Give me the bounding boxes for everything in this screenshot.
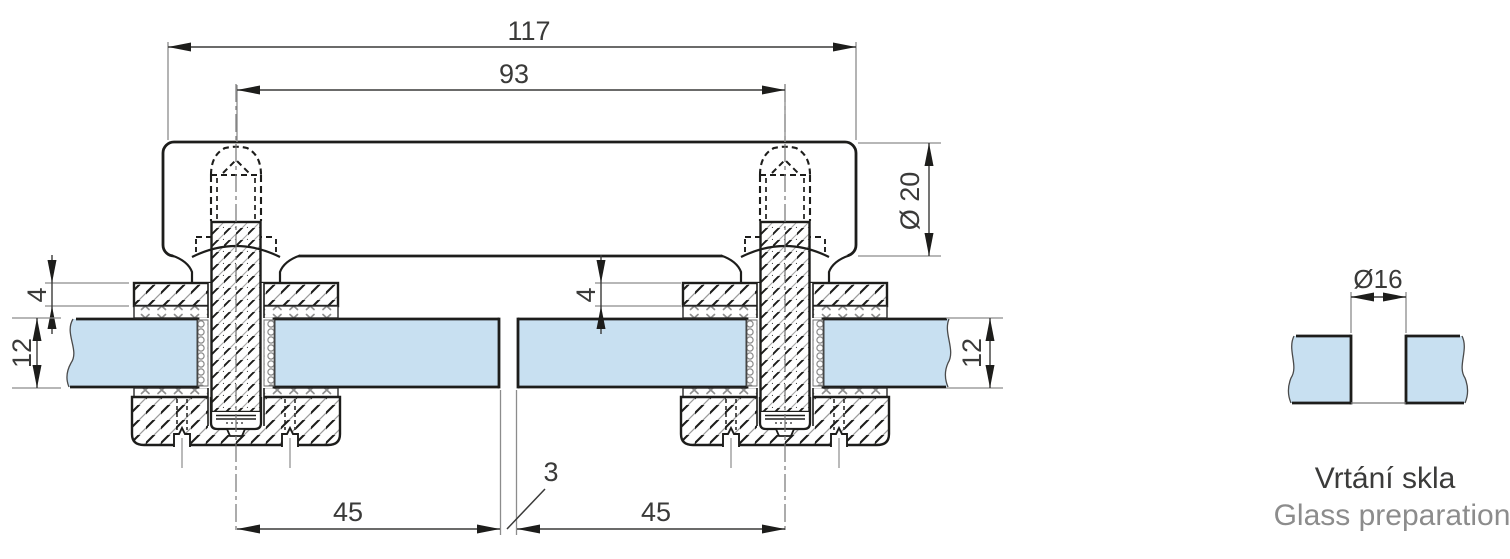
dimension-glass-gap: 3 [507,457,559,529]
handrail-tube-profile [163,142,856,256]
glass-fitting-section-drawing: 117 93 Ø 20 4 12 4 [0,0,1510,559]
glass-panel-right [518,318,951,389]
dim-label-d16: Ø16 [1353,264,1402,294]
dim-label-4-left: 4 [22,287,52,302]
dim-label-93: 93 [499,59,529,89]
glass-fill [67,319,499,387]
caption-czech: Vrtání skla [1315,462,1456,495]
dim-label-3: 3 [543,457,558,487]
dim-label-d20: Ø 20 [895,172,925,231]
dimension-tube-diameter: Ø 20 [858,143,941,256]
caption-english: Glass preparation [1274,499,1510,532]
technical-drawing-canvas: 117 93 Ø 20 4 12 4 [0,0,1510,559]
dim-label-45-left: 45 [333,497,363,527]
dimension-bolt-spacing: 93 [237,59,785,142]
point-fitting-right [681,84,889,534]
dim-label-117: 117 [507,16,550,46]
dim-label-12-left: 12 [7,338,37,368]
dim-label-45-right: 45 [641,497,671,527]
glass-panel-left [67,318,499,389]
glass-preparation-detail [1288,335,1467,405]
dim-label-4-middle: 4 [571,287,601,302]
dimension-glass-thickness-right: 12 [946,318,1003,388]
dimension-hole-diameter: Ø16 [1351,264,1406,333]
dim-label-12-right: 12 [957,338,987,368]
glass-fill [518,319,951,387]
